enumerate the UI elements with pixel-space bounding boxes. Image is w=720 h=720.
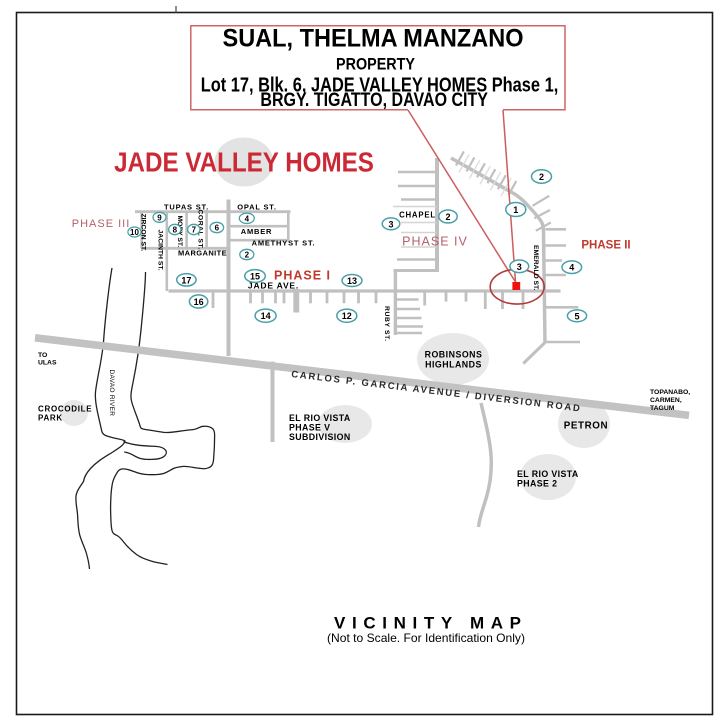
svg-text:8: 8: [173, 226, 178, 235]
svg-text:17: 17: [181, 275, 191, 285]
svg-text:TO: TO: [38, 352, 47, 359]
svg-text:JADE VALLEY HOMES: JADE VALLEY HOMES: [114, 146, 374, 177]
svg-text:3: 3: [388, 219, 393, 229]
svg-text:ULAS: ULAS: [38, 360, 57, 367]
svg-text:PARK: PARK: [38, 414, 63, 423]
svg-text:3: 3: [517, 262, 522, 272]
svg-text:TAGUM: TAGUM: [650, 405, 675, 412]
svg-text:2: 2: [539, 172, 544, 182]
svg-text:TOPANABO,: TOPANABO,: [650, 389, 690, 396]
svg-text:16: 16: [194, 297, 204, 307]
svg-text:CROCODILE: CROCODILE: [38, 405, 92, 414]
svg-text:12: 12: [342, 311, 352, 321]
svg-text:5: 5: [574, 311, 579, 321]
svg-text:PHASE II: PHASE II: [581, 239, 630, 251]
svg-text:PHASE 2: PHASE 2: [517, 479, 557, 489]
svg-text:PHASE IV: PHASE IV: [402, 235, 468, 249]
svg-text:PHASE III: PHASE III: [72, 218, 131, 230]
svg-text:2: 2: [245, 251, 250, 260]
svg-text:DAVAO RIVER: DAVAO RIVER: [108, 370, 115, 417]
svg-text:6: 6: [215, 224, 220, 233]
svg-text:EL RIO VISTA: EL RIO VISTA: [517, 469, 579, 479]
svg-text:(Not to Scale. For Identificat: (Not to Scale. For Identification Only): [327, 631, 525, 645]
svg-text:9: 9: [157, 213, 162, 222]
svg-text:AMETHYST ST.: AMETHYST ST.: [252, 239, 316, 248]
svg-text:14: 14: [261, 311, 271, 321]
svg-text:AMBER: AMBER: [241, 227, 273, 236]
svg-text:2: 2: [445, 212, 450, 222]
svg-text:JACINTH ST.: JACINTH ST.: [156, 230, 163, 271]
svg-text:RUBY ST.: RUBY ST.: [383, 306, 390, 342]
svg-text:ROBINSONS: ROBINSONS: [425, 350, 483, 360]
svg-text:CHAPEL: CHAPEL: [399, 210, 436, 219]
svg-text:PHASE V: PHASE V: [289, 423, 330, 433]
svg-text:EL RIO VISTA: EL RIO VISTA: [289, 413, 351, 423]
svg-text:OPAL ST.: OPAL ST.: [237, 203, 276, 212]
svg-text:SUAL, THELMA MANZANO: SUAL, THELMA MANZANO: [223, 25, 524, 53]
svg-text:SUBDIVISION: SUBDIVISION: [289, 432, 351, 442]
svg-text:HIGHLANDS: HIGHLANDS: [425, 360, 482, 370]
svg-text:CARMEN,: CARMEN,: [650, 397, 682, 404]
svg-text:1: 1: [513, 205, 518, 215]
svg-text:4: 4: [569, 263, 574, 273]
svg-text:PROPERTY: PROPERTY: [336, 56, 415, 74]
svg-text:7: 7: [192, 226, 197, 235]
svg-text:13: 13: [347, 276, 357, 286]
svg-text:4: 4: [245, 214, 250, 223]
svg-text:10: 10: [130, 228, 139, 237]
svg-text:15: 15: [250, 272, 260, 282]
svg-text:PETRON: PETRON: [564, 421, 608, 432]
svg-text:BRGY. TIGATTO, DAVAO CITY: BRGY. TIGATTO, DAVAO CITY: [260, 90, 488, 111]
svg-text:EMERALD ST.: EMERALD ST.: [532, 245, 539, 290]
